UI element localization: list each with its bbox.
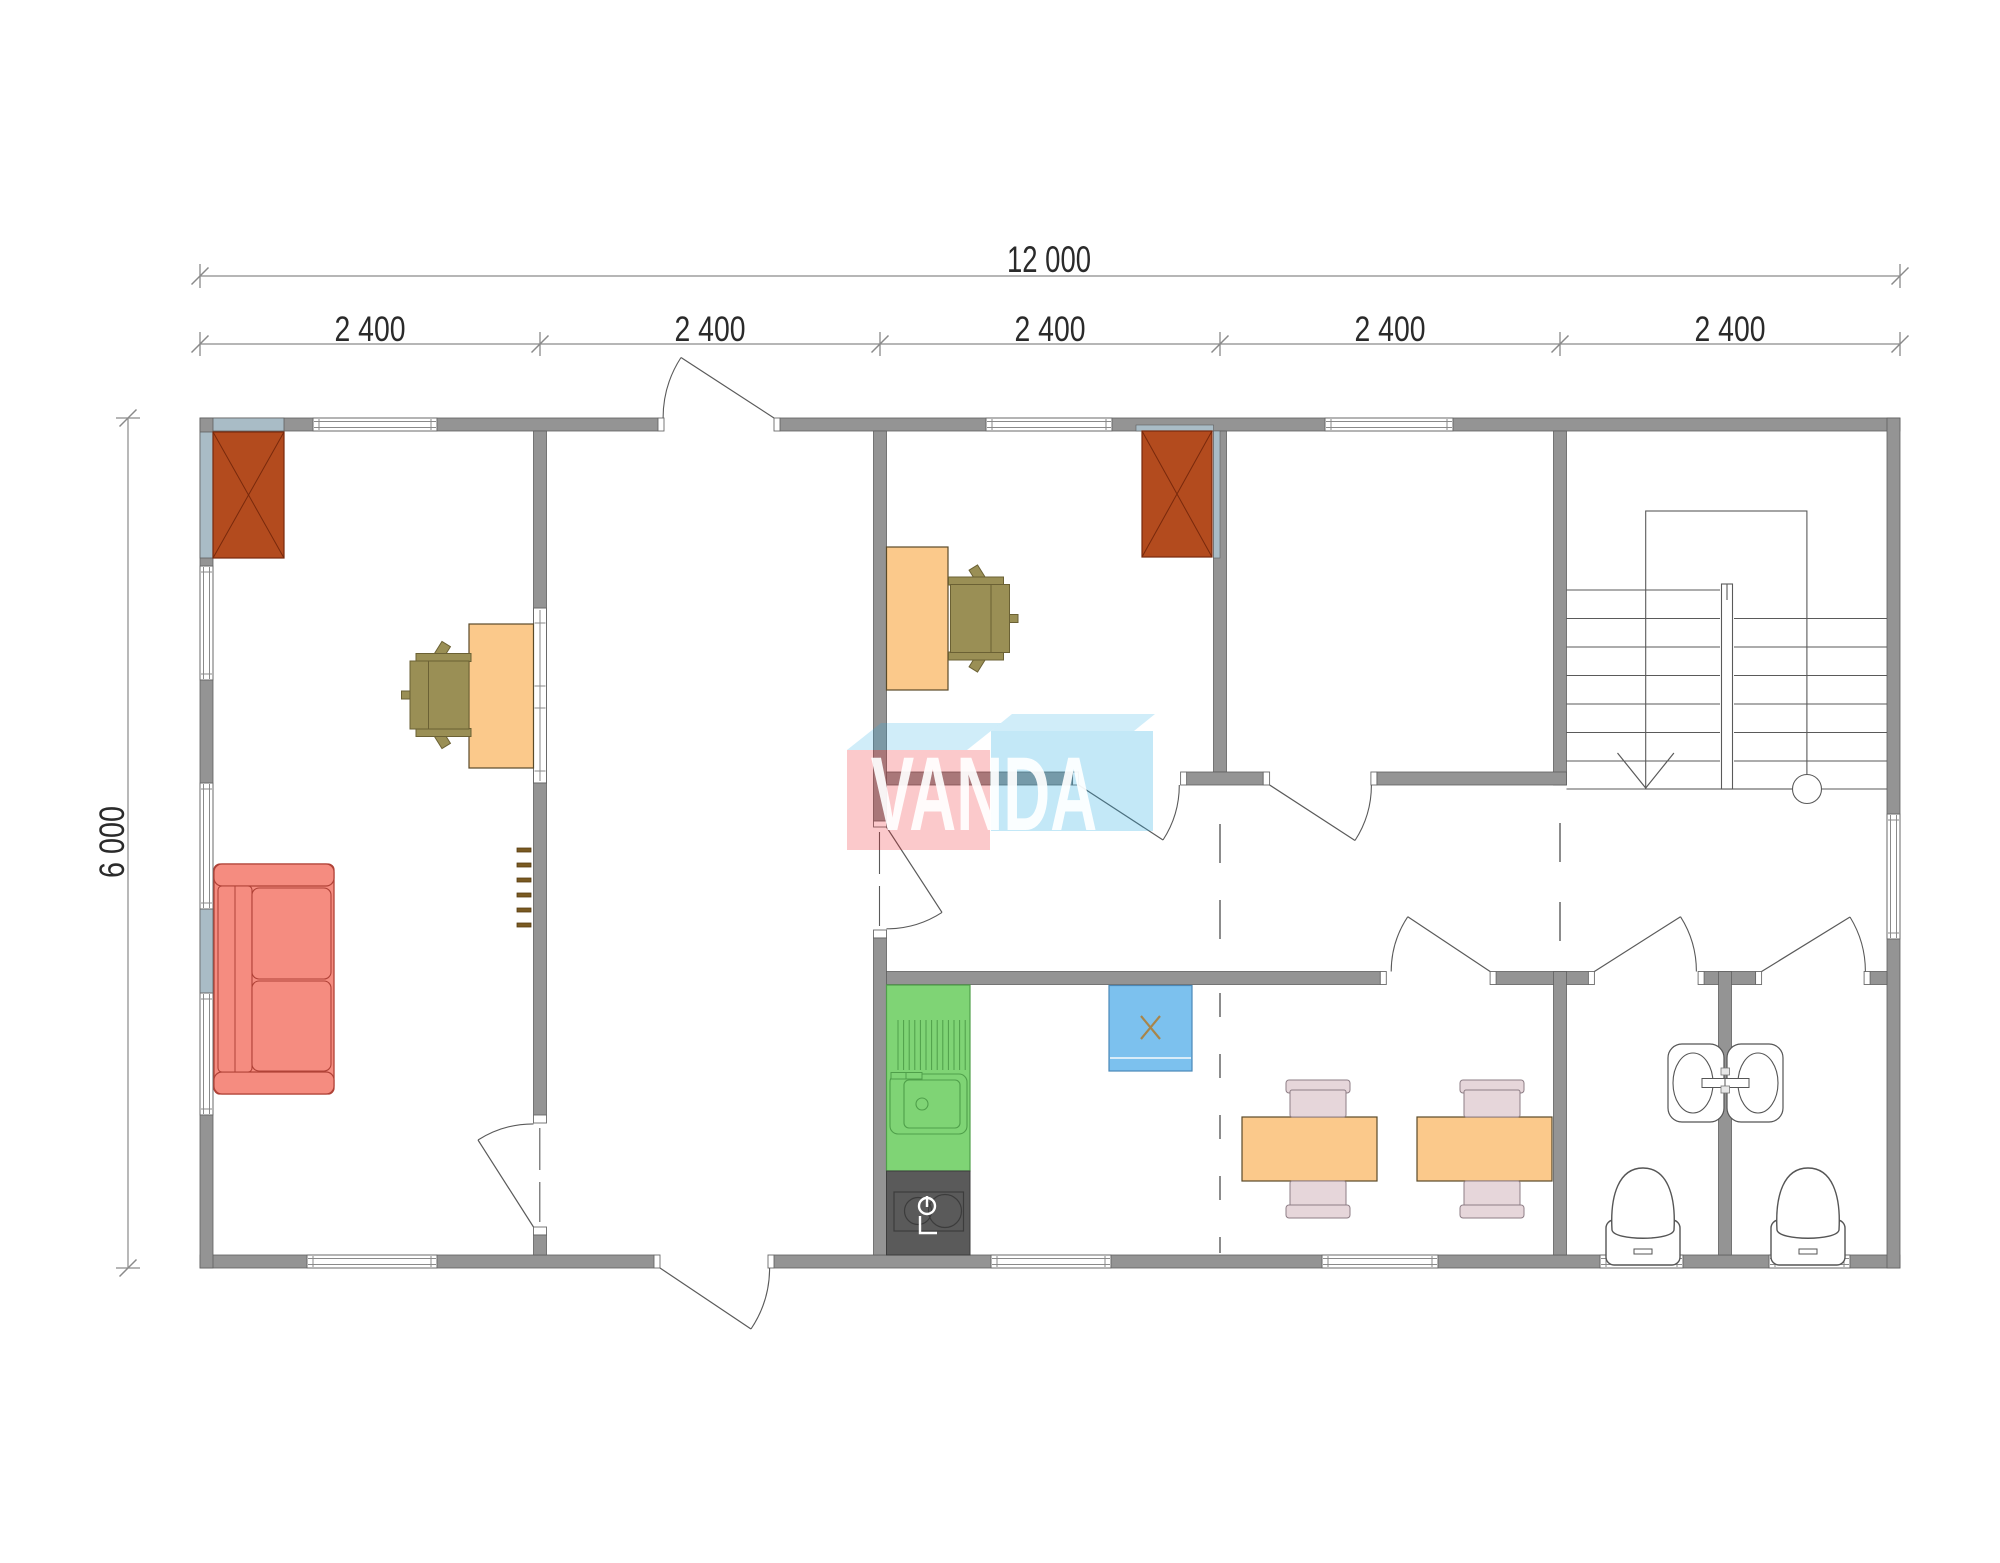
svg-text:2 400: 2 400 xyxy=(1355,310,1426,349)
svg-text:2 400: 2 400 xyxy=(675,310,746,349)
svg-text:2 400: 2 400 xyxy=(1015,310,1086,349)
svg-text:2 400: 2 400 xyxy=(1695,310,1766,349)
svg-text:2 400: 2 400 xyxy=(335,310,406,349)
svg-text:VANDA: VANDA xyxy=(871,735,1098,853)
svg-text:6 000: 6 000 xyxy=(93,806,132,878)
svg-text:12 000: 12 000 xyxy=(1007,239,1091,280)
